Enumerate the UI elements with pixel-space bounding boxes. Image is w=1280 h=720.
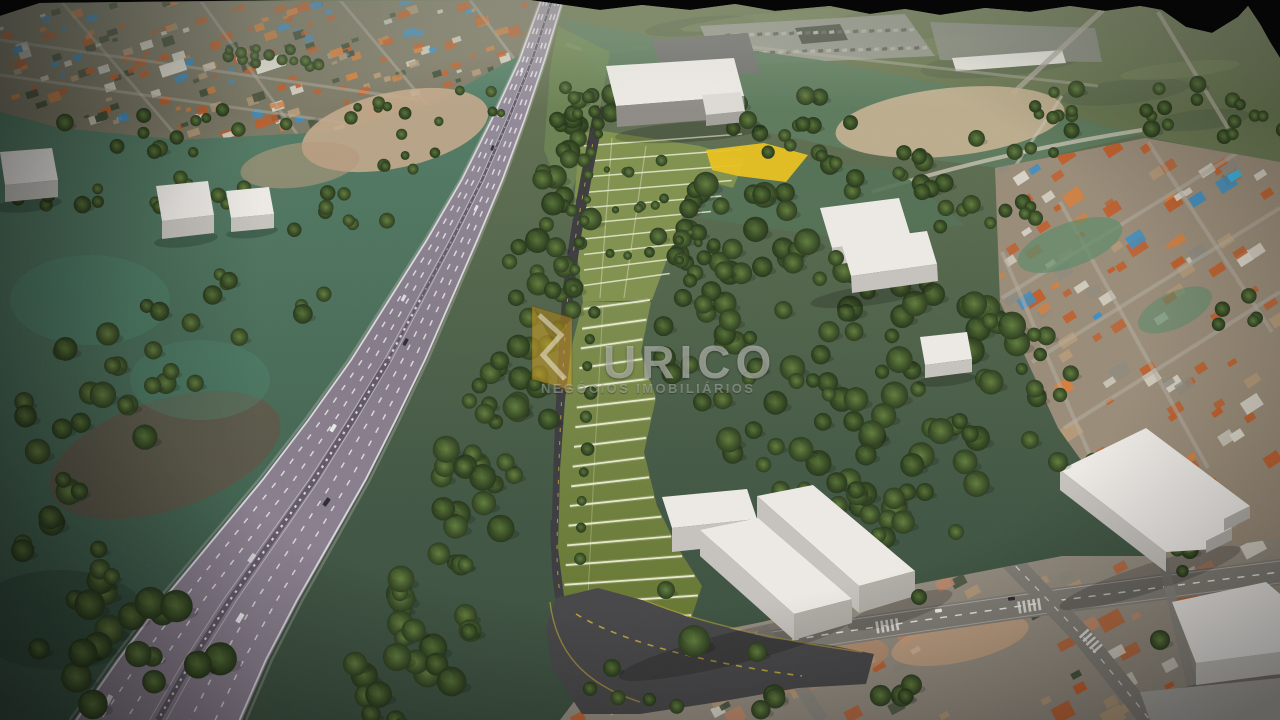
lighting-overlay — [0, 0, 1280, 720]
terrain — [0, 0, 1280, 720]
aerial-render: URICO NEGÓCIOS IMOBILIÁRIOS — [0, 0, 1280, 720]
scene-svg — [0, 0, 1280, 720]
